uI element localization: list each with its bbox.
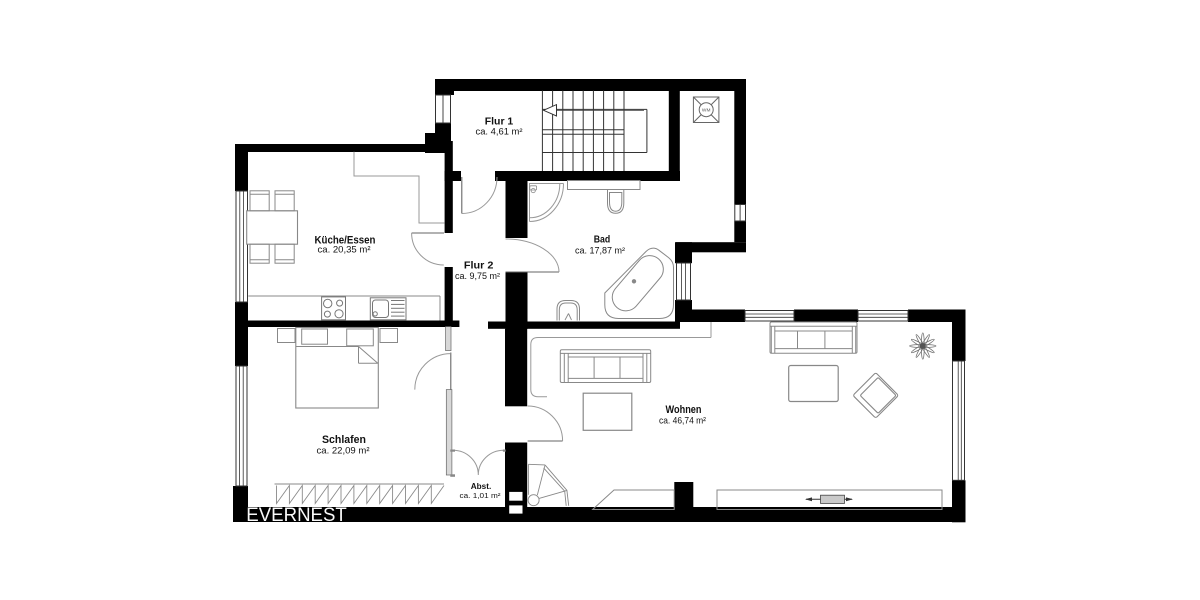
- svg-text:ca. 1,01 m²: ca. 1,01 m²: [460, 491, 502, 500]
- svg-text:ca. 20,35 m²: ca. 20,35 m²: [318, 245, 371, 256]
- svg-text:ca. 17,87 m²: ca. 17,87 m²: [575, 245, 625, 255]
- svg-text:ca. 4,61 m²: ca. 4,61 m²: [476, 127, 523, 137]
- svg-text:Wohnen: Wohnen: [666, 404, 702, 416]
- svg-text:Bad: Bad: [594, 233, 611, 245]
- svg-text:Flur 2: Flur 2: [464, 259, 494, 271]
- svg-text:WM: WM: [702, 108, 711, 114]
- svg-text:ca. 22,09 m²: ca. 22,09 m²: [317, 445, 370, 456]
- svg-text:EVERNEST: EVERNEST: [246, 505, 347, 526]
- svg-text:ca. 9,75 m²: ca. 9,75 m²: [455, 271, 500, 281]
- svg-text:ca. 46,74 m²: ca. 46,74 m²: [659, 415, 706, 426]
- svg-text:Abst.: Abst.: [471, 481, 492, 491]
- svg-text:Schlafen: Schlafen: [322, 434, 366, 446]
